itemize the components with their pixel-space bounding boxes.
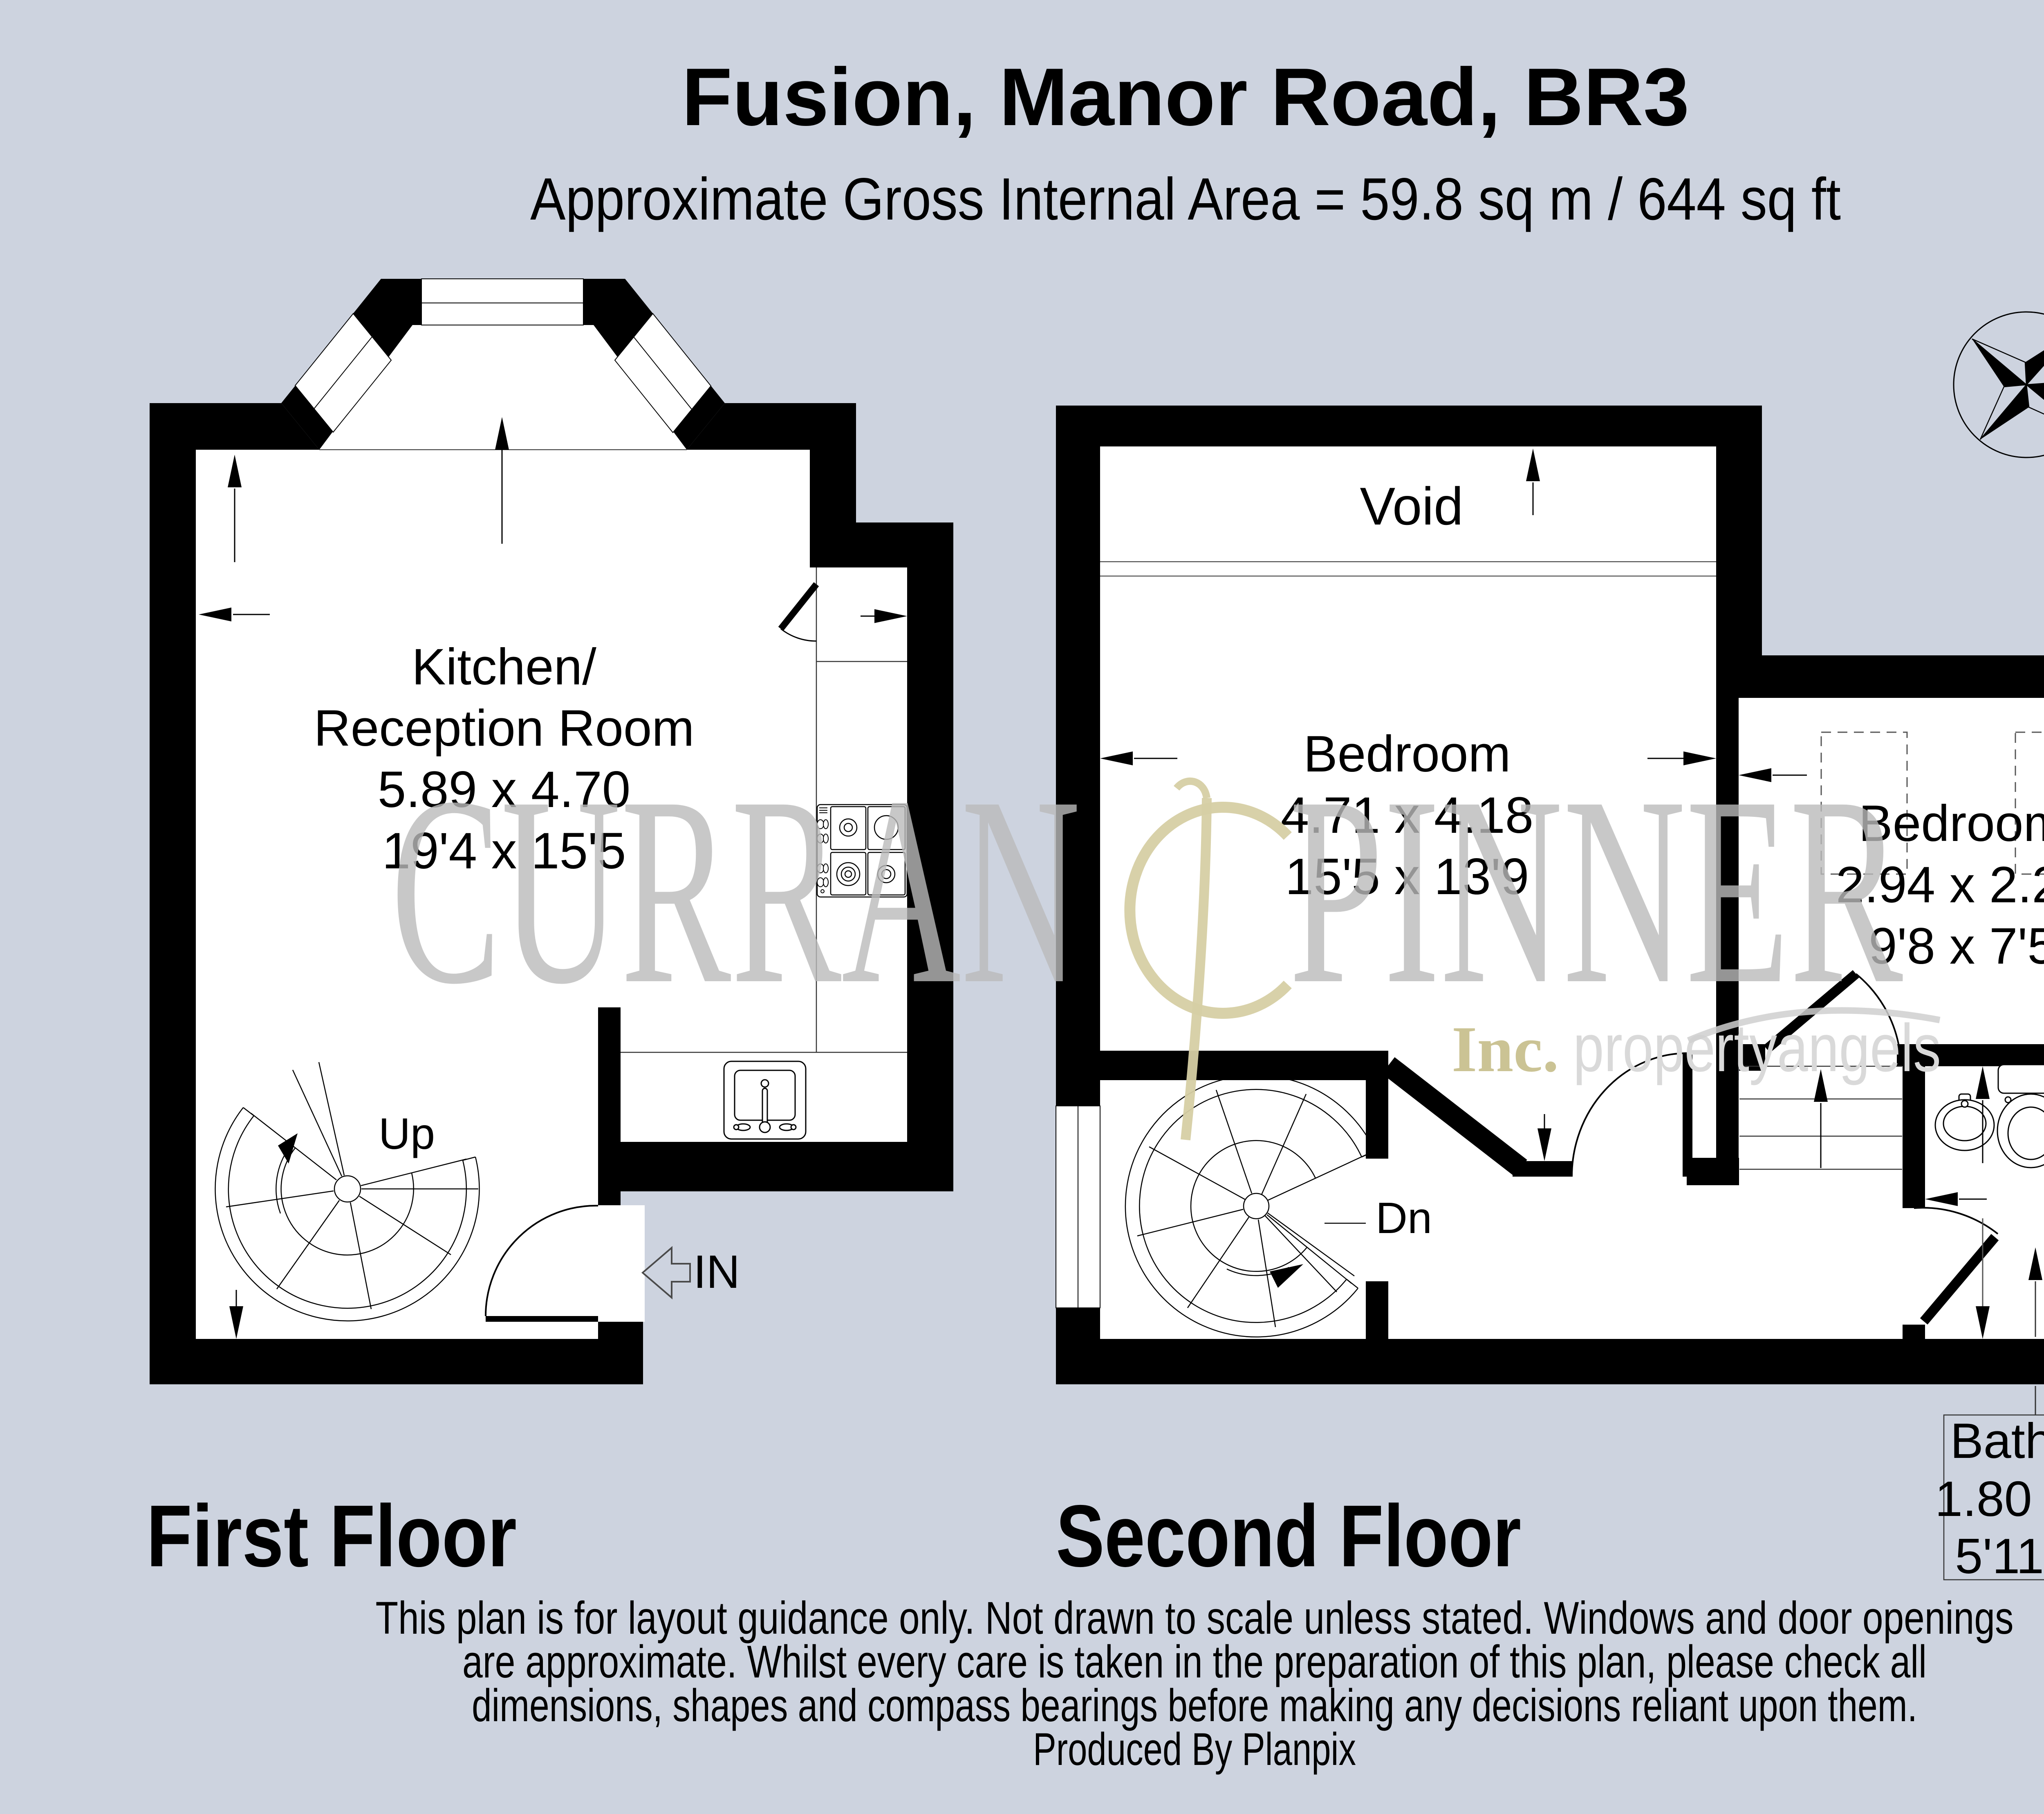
svg-text:Bathroom: Bathroom <box>1950 1413 2044 1469</box>
svg-text:Produced By Planpix: Produced By Planpix <box>1033 1724 1356 1775</box>
svg-text:IN: IN <box>693 1246 740 1298</box>
svg-text:Inc.: Inc. <box>1452 1013 1559 1085</box>
svg-text:Void: Void <box>1360 476 1463 536</box>
svg-text:First Floor: First Floor <box>146 1487 517 1585</box>
svg-text:5'11 x 5'7: 5'11 x 5'7 <box>1955 1528 2044 1584</box>
svg-text:1.80 x 1.71: 1.80 x 1.71 <box>1935 1471 2044 1527</box>
svg-text:CURRAN: CURRAN <box>391 741 1080 1040</box>
svg-text:Kitchen/: Kitchen/ <box>412 639 596 695</box>
svg-text:Dn: Dn <box>1376 1193 1432 1242</box>
svg-text:Fusion, Manor Road, BR3: Fusion, Manor Road, BR3 <box>682 52 1690 143</box>
svg-text:PINNER: PINNER <box>1289 741 1904 1040</box>
svg-text:Approximate Gross Internal Are: Approximate Gross Internal Area = 59.8 s… <box>530 166 1841 232</box>
svg-text:Second Floor: Second Floor <box>1056 1487 1521 1585</box>
svg-text:Up: Up <box>379 1109 435 1158</box>
